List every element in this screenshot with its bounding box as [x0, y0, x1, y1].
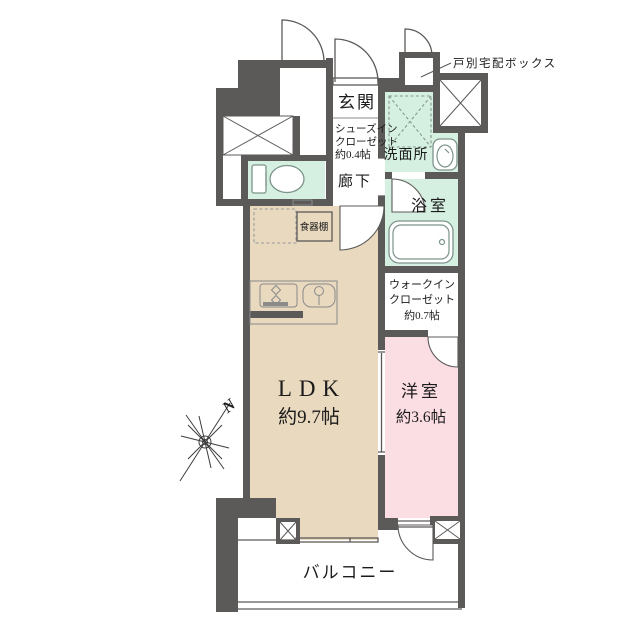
wall [399, 58, 405, 85]
wall [216, 116, 223, 206]
entrance-label: 玄関 [338, 93, 376, 112]
wall [326, 58, 333, 206]
ldk-name-label: LDK [278, 376, 346, 401]
wic-label-3: 約0.7帖 [404, 308, 440, 322]
bathtub-icon [389, 221, 453, 263]
wall [433, 73, 488, 80]
wic-label-2: クローゼット [389, 293, 455, 306]
cupboard-label: 食器棚 [300, 221, 329, 233]
floorplan-image: 食器棚 戸別宅配ボックス N 玄関 シューズイン クローゼット 約0.4帖 廊下… [0, 0, 640, 640]
wall [241, 161, 248, 199]
ldk-size-label: 約9.7帖 [278, 406, 340, 428]
wall [293, 116, 300, 155]
washbasin-icon [433, 139, 457, 170]
wic-label-1: ウォークイン [389, 278, 455, 291]
wall [241, 155, 333, 161]
wall [433, 126, 488, 133]
pillar-right-icon [435, 521, 460, 539]
kitchen-half-wall [248, 311, 303, 318]
wall [458, 133, 465, 516]
bathroom-label: 浴室 [411, 197, 449, 215]
shoe-closet-label-2: クローゼット [335, 136, 398, 148]
pillar-left-icon [280, 522, 296, 540]
wall [385, 266, 458, 273]
wall [280, 60, 326, 68]
shoe-closet-label-3: 約0.4帖 [335, 147, 371, 161]
bedroom-size-label: 約3.6帖 [396, 408, 446, 426]
washroom-label: 洗面所 [384, 147, 429, 163]
wall [378, 85, 433, 92]
shaft-icon [440, 80, 481, 126]
wall [425, 172, 458, 179]
toilet-icon [252, 165, 304, 193]
wall [216, 199, 333, 206]
wall [385, 330, 428, 337]
wall [243, 206, 250, 498]
wall [481, 73, 488, 133]
balcony-label: バルコニー [303, 563, 398, 582]
sliding-door-ldk-bedroom [378, 350, 385, 455]
bedroom-name-label: 洋室 [401, 382, 441, 401]
shoe-closet-label-1: シューズイン [335, 122, 397, 135]
floorplan-svg: 食器棚 戸別宅配ボックス N 玄関 シューズイン クローゼット 約0.4帖 廊下… [0, 0, 640, 640]
room-ldk-floor [250, 206, 378, 540]
hallway-label: 廊下 [338, 173, 372, 190]
wall [385, 172, 392, 179]
wall [458, 544, 465, 608]
wall [378, 518, 398, 530]
delivery-box-label: 戸別宅配ボックス [453, 56, 557, 70]
wall [378, 455, 385, 518]
